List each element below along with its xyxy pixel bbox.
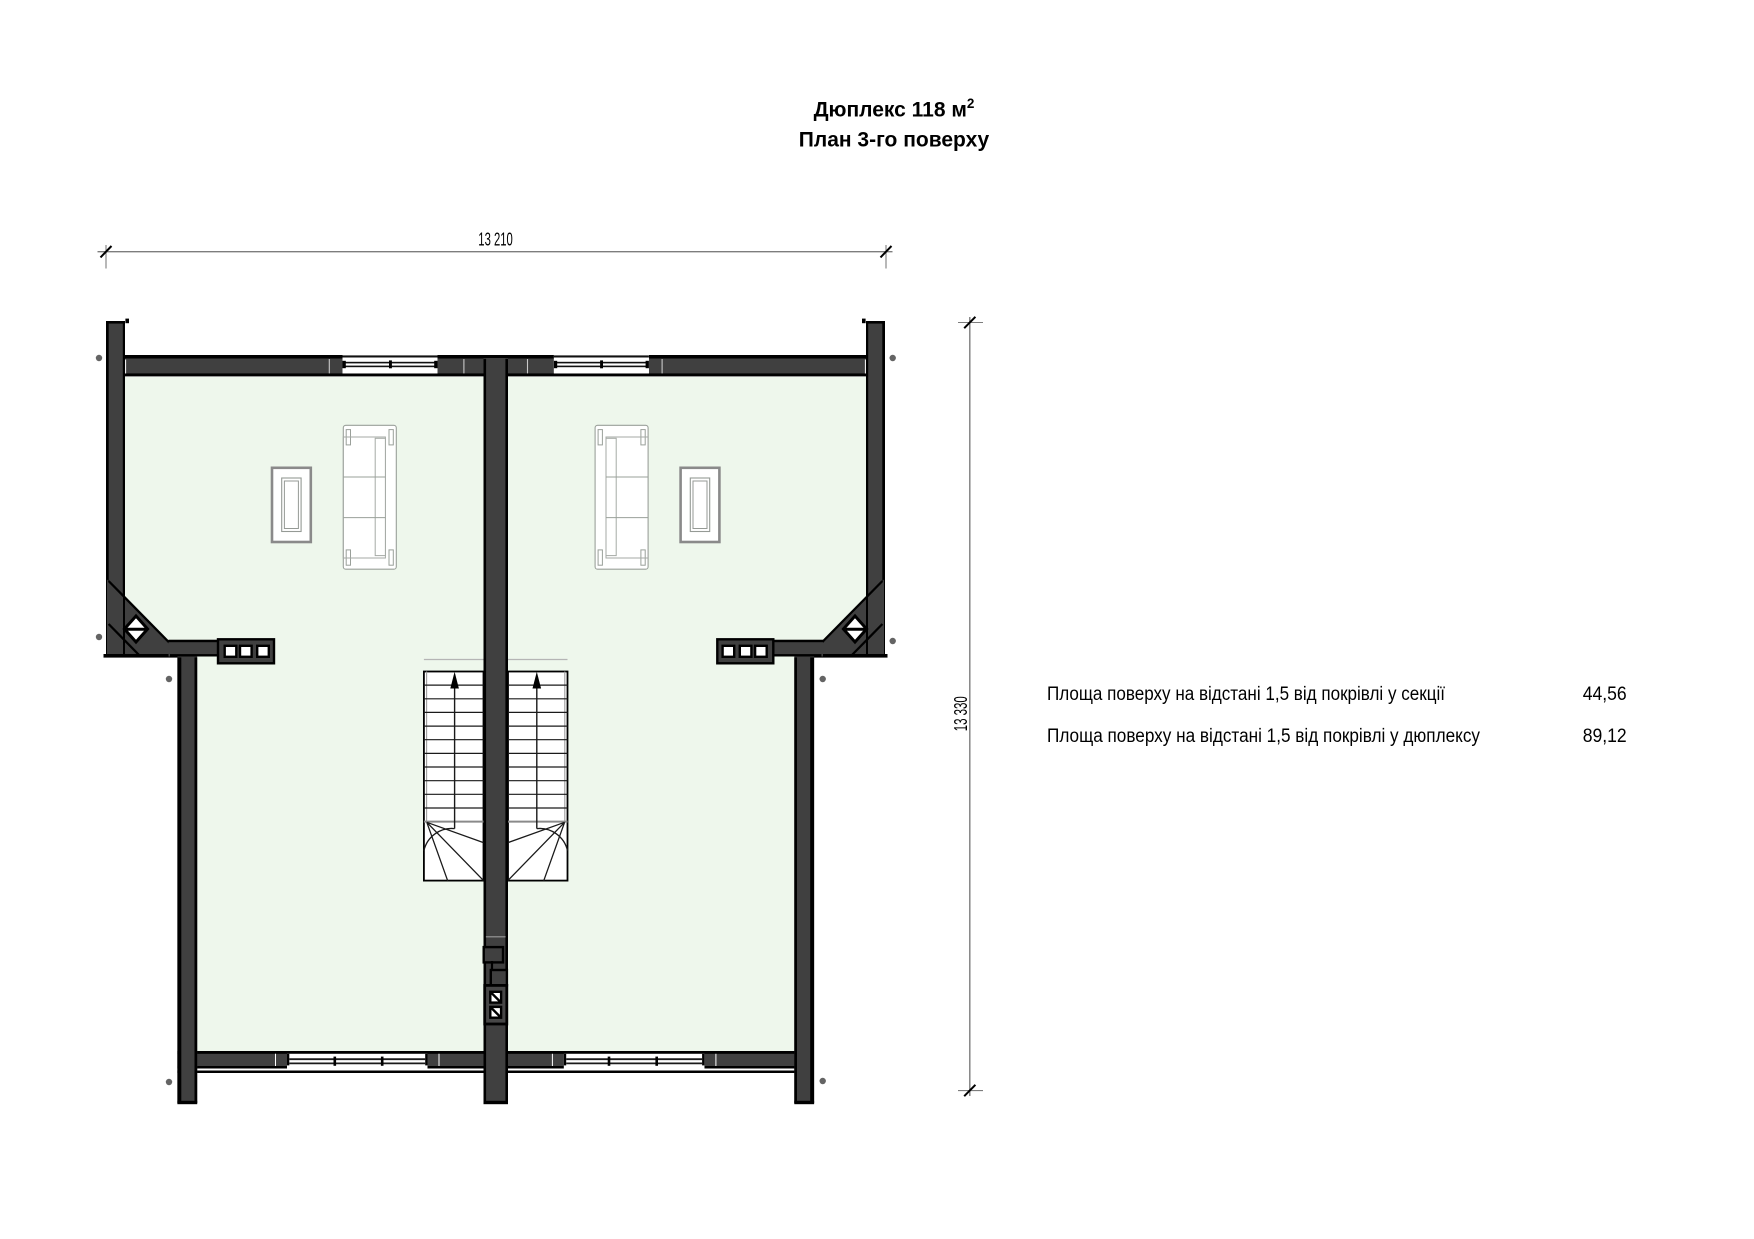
svg-text:Площа поверху на відстані 1,5: Площа поверху на відстані 1,5 від покрів…: [1047, 726, 1480, 747]
svg-text:Дюплекс 118 м2: Дюплекс 118 м2: [814, 96, 975, 122]
svg-text:13 210: 13 210: [478, 229, 513, 250]
svg-text:Площа поверху на відстані 1,5: Площа поверху на відстані 1,5 від покрів…: [1047, 684, 1446, 705]
svg-text:44,56: 44,56: [1583, 684, 1627, 705]
svg-text:89,12: 89,12: [1583, 726, 1627, 747]
svg-text:План 3-го поверху: План 3-го поверху: [799, 129, 990, 152]
svg-text:13 330: 13 330: [950, 696, 971, 731]
